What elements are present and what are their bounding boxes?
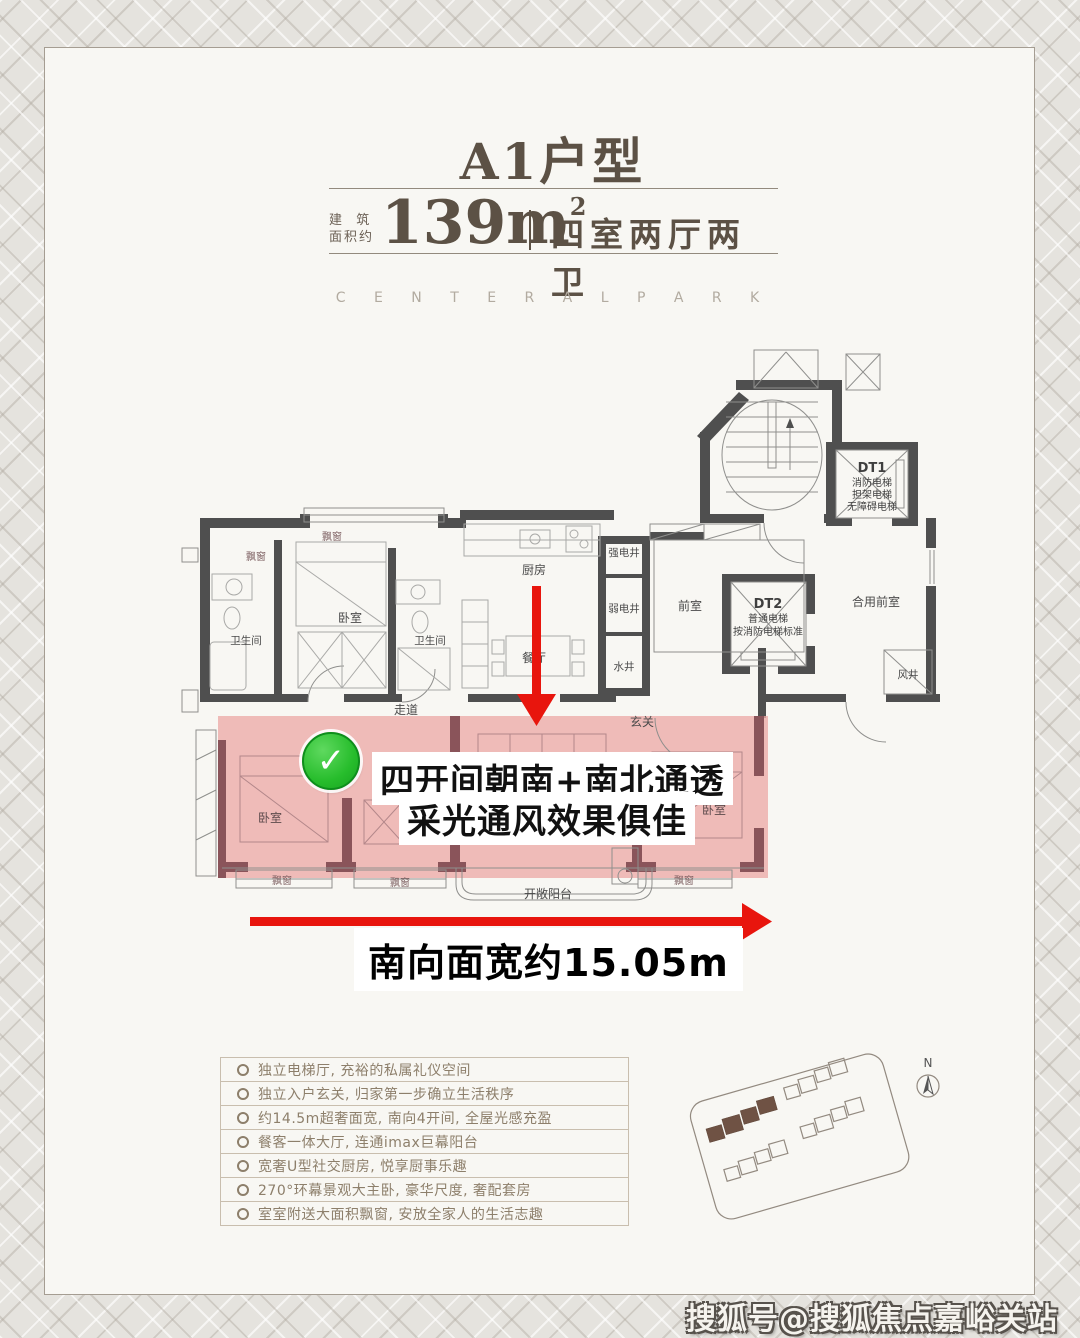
check-icon: ✓ [302,732,360,790]
floorplan-drawing: 飘窗 飘窗 卧室 卫生间 卫生间 厨房 餐厅 强电井 弱电井 水井 前室 合用前… [140,345,970,1015]
label-dt2-line2: 按消防电梯标准 [733,625,803,638]
feature-row: 餐客一体大厅, 连通imax巨幕阳台 [221,1130,628,1154]
area-label: 建 筑面积约 [329,212,385,246]
label-dt1-line3: 无障碍电梯 [847,500,897,513]
area-label-line1: 建 筑 [329,213,371,228]
label-bathroom-mid: 卫生间 [414,634,446,647]
bullet-ring-icon [237,1160,249,1172]
label-bay-window-south-2: 飘窗 [390,876,410,889]
check-glyph: ✓ [317,741,346,781]
label-open-balcony: 开敞阳台 [524,886,572,901]
feature-text: 室室附送大面积飘窗, 安放全家人的生活志趣 [258,1204,543,1224]
label-bay-window-south-3: 飘窗 [674,874,694,887]
page-title: A1户型 [45,122,1034,194]
label-bedroom-south-left: 卧室 [258,810,282,825]
floorplan-poster: { "header": { "title": "A1户型", "area_lab… [0,0,1080,1338]
label-bay-window-north-small: 飘窗 [246,550,266,563]
label-shared-front-room: 合用前室 [852,594,900,609]
label-wind-shaft: 风井 [898,668,919,681]
highlight-caption-line2: 采光通风效果俱佳 [399,792,695,845]
label-dt2: DT2 [754,597,783,612]
header-divider-bottom [329,253,778,254]
bullet-ring-icon [237,1136,249,1148]
feature-text: 餐客一体大厅, 连通imax巨幕阳台 [258,1132,478,1152]
area-spec-row: 建 筑面积约 139m2 四室两厅两卫 [329,198,778,260]
bullet-ring-icon [237,1064,249,1076]
feature-text: 宽奢U型社交厨房, 悦享厨事乐趣 [258,1156,467,1176]
label-dt1-line1: 消防电梯 [852,476,892,489]
south-width-label: 南向面宽约15.05m [354,928,743,991]
label-kitchen: 厨房 [522,562,546,577]
bullet-ring-icon [237,1208,249,1220]
label-bay-window-south-1: 飘窗 [272,874,292,887]
feature-row: 独立电梯厅, 充裕的私属礼仪空间 [221,1058,628,1082]
north-compass-icon: N [917,1056,939,1097]
feature-row: 独立入户玄关, 归家第一步确立生活秩序 [221,1082,628,1106]
bullet-ring-icon [237,1088,249,1100]
area-divider [529,210,531,250]
label-dt1-line2: 担架电梯 [852,488,892,501]
site-map-plot [686,1048,912,1222]
subtitle-centeral-park: C E N T E R A L P A R K [329,290,778,306]
feature-row: 室室附送大面积飘窗, 安放全家人的生活志趣 [221,1202,628,1226]
stair-core-walls [697,380,936,702]
label-front-room: 前室 [678,598,702,613]
area-number: 139m [381,188,570,258]
feature-list: 独立电梯厅, 充裕的私属礼仪空间 独立入户玄关, 归家第一步确立生活秩序 约14… [220,1057,629,1226]
label-dt2-line1: 普通电梯 [748,612,788,625]
north-label: N [924,1056,933,1070]
north-furniture [210,524,600,690]
feature-text: 270°环幕景观大主卧, 豪华尺度, 奢配套房 [258,1180,531,1200]
label-bay-window-north: 飘窗 [322,530,342,543]
feature-text: 独立入户玄关, 归家第一步确立生活秩序 [258,1084,514,1104]
feature-text: 约14.5m超奢面宽, 南向4开间, 全屋光感充盈 [258,1108,552,1128]
label-corridor: 走道 [394,703,418,717]
highlighted-building-row [702,1096,781,1142]
label-bedroom-north: 卧室 [338,610,362,625]
feature-row: 约14.5m超奢面宽, 南向4开间, 全屋光感充盈 [221,1106,628,1130]
watermark-sohu: 搜狐号@搜狐焦点嘉峪关站 [686,1294,1058,1338]
label-dt1: DT1 [858,461,887,476]
bullet-ring-icon [237,1112,249,1124]
label-strong-elec-shaft: 强电井 [608,546,640,559]
label-weak-elec-shaft: 弱电井 [608,602,640,615]
feature-row: 270°环幕景观大主卧, 豪华尺度, 奢配套房 [221,1178,628,1202]
label-foyer: 玄关 [630,714,654,729]
label-bathroom-left: 卫生间 [230,634,262,647]
label-water-shaft: 水井 [614,660,635,673]
area-label-line2: 面积约 [329,230,374,245]
site-map: N [678,1046,978,1241]
stairs-detail [722,400,822,510]
bullet-ring-icon [237,1184,249,1196]
feature-text: 独立电梯厅, 充裕的私属礼仪空间 [258,1060,471,1080]
feature-row: 宽奢U型社交厨房, 悦享厨事乐趣 [221,1154,628,1178]
